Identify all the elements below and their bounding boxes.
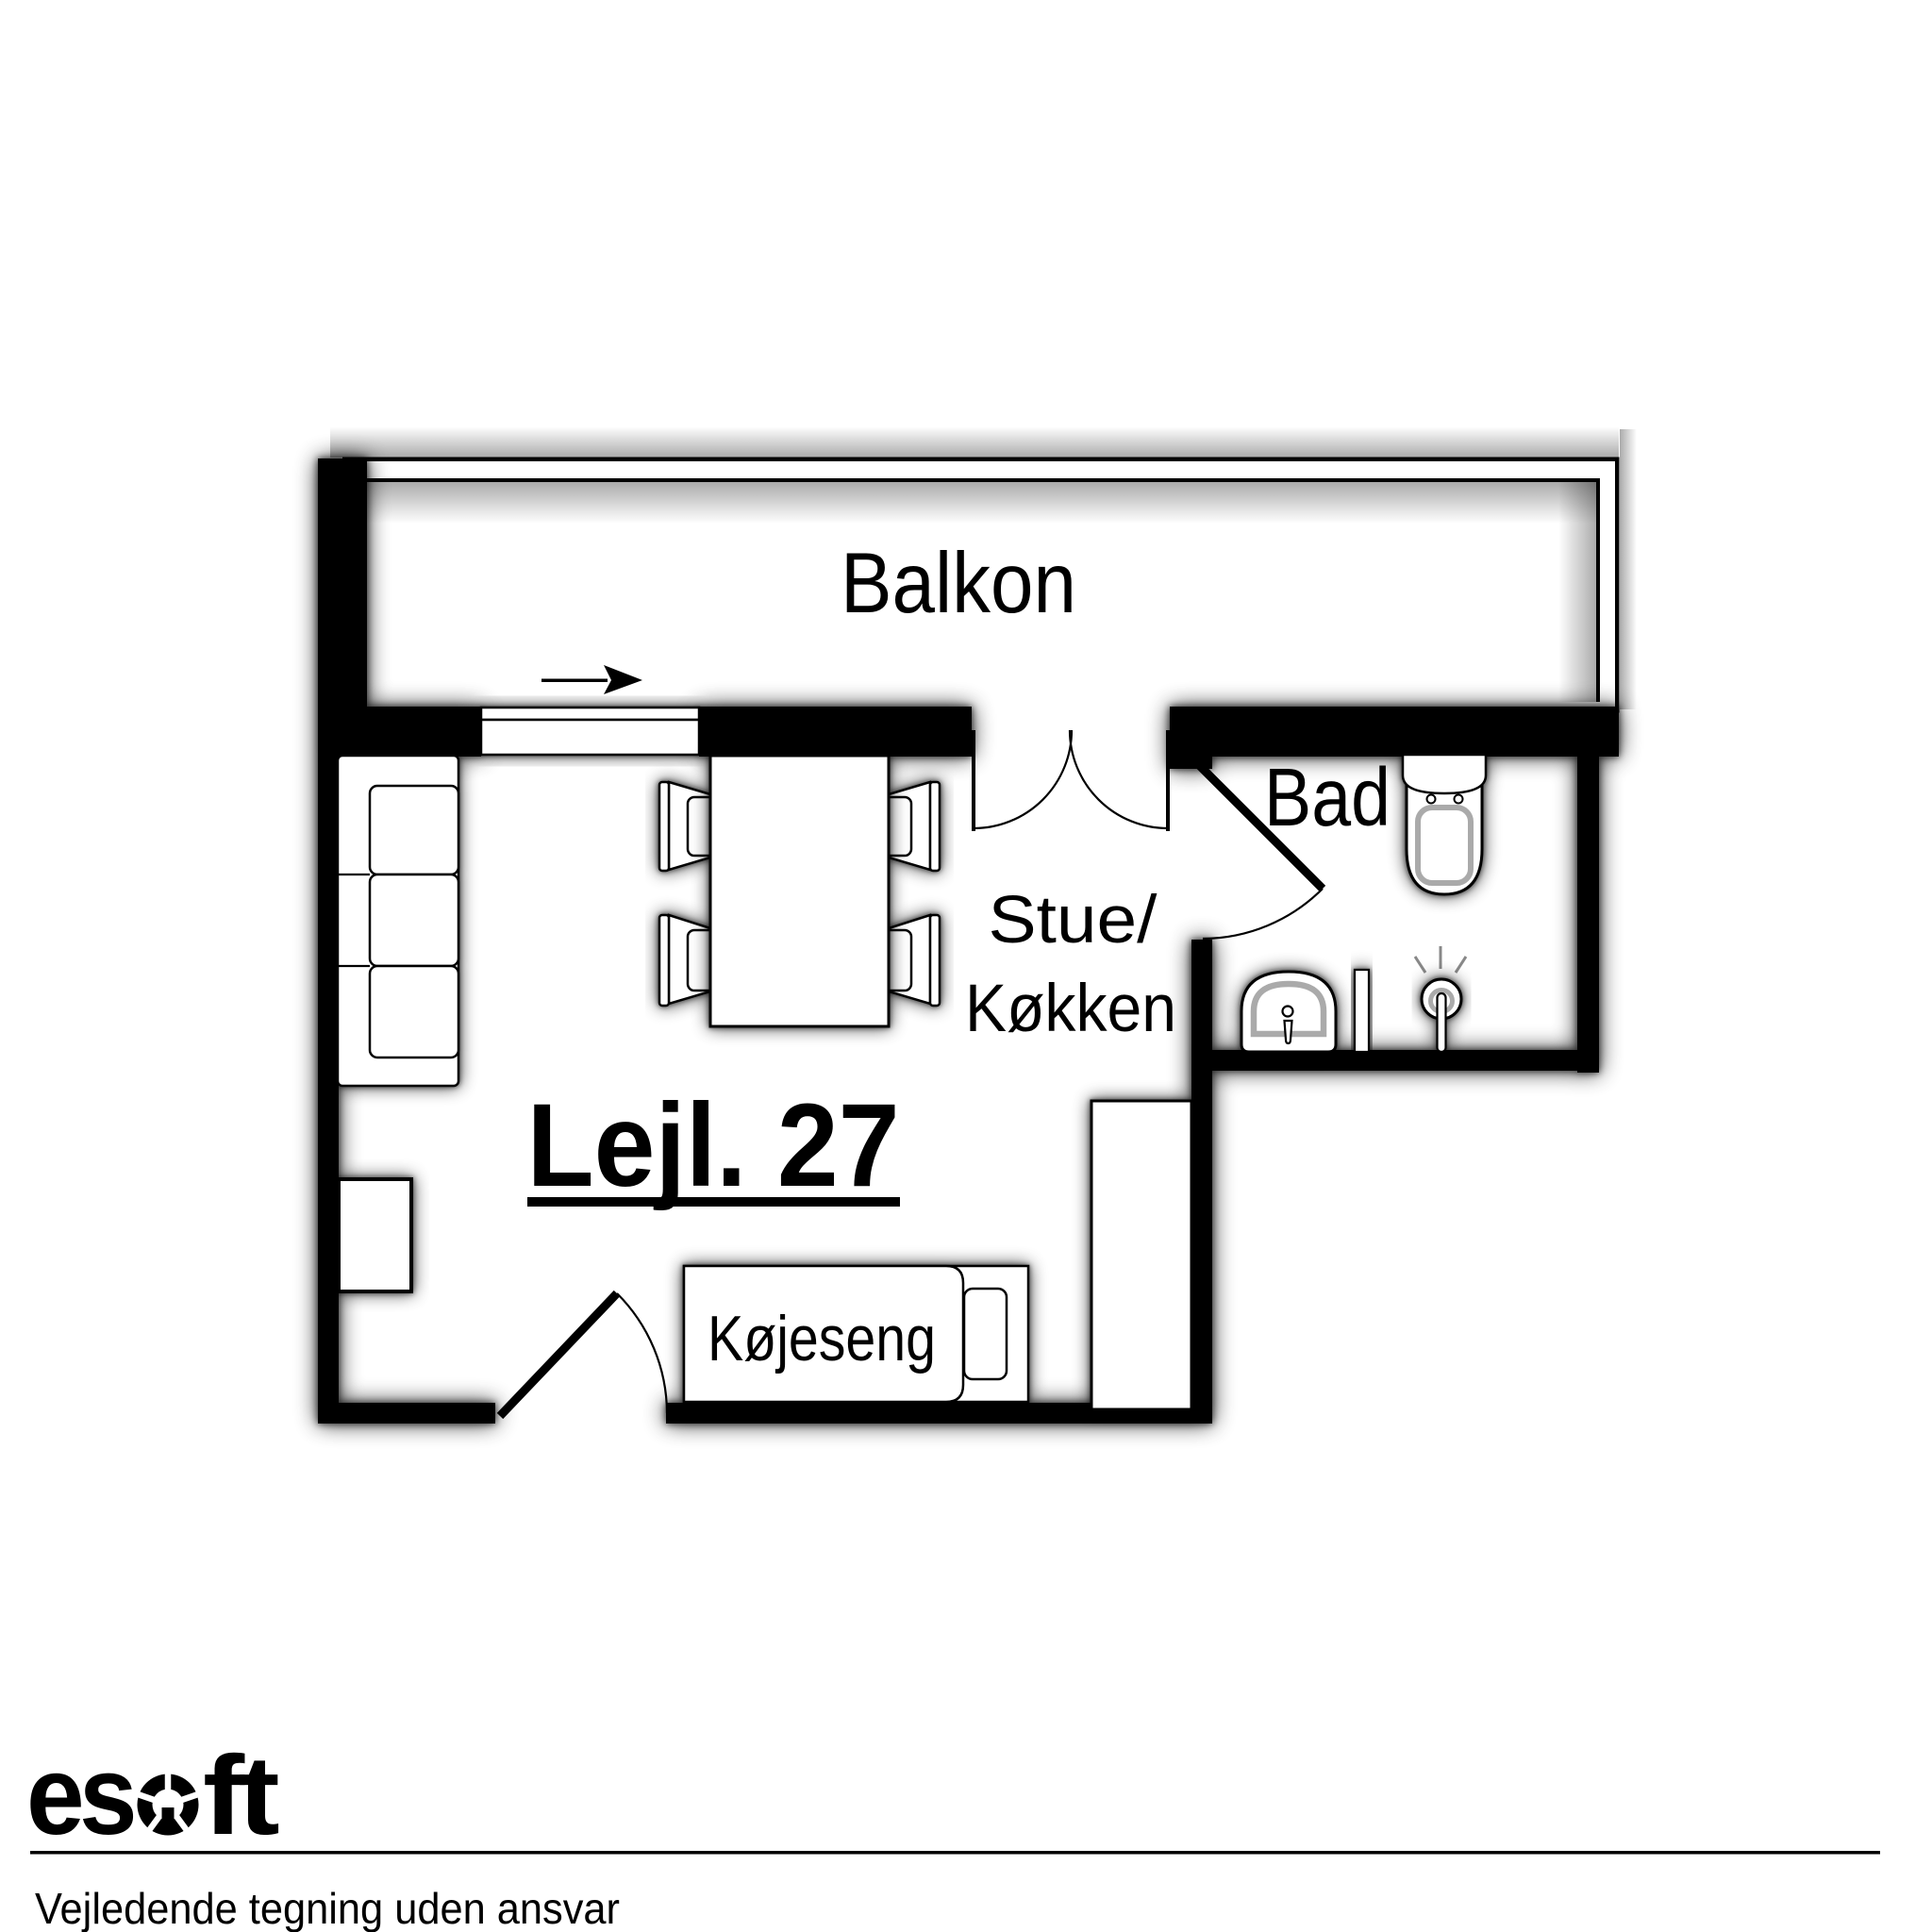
svg-text:Lejl. 27: Lejl. 27 bbox=[527, 1080, 900, 1211]
svg-text:es: es bbox=[26, 1733, 134, 1858]
svg-text:Bad: Bad bbox=[1264, 752, 1391, 843]
svg-text:Vejledende tegning uden ansvar: Vejledende tegning uden ansvar bbox=[35, 1884, 620, 1932]
svg-text:ft: ft bbox=[203, 1733, 279, 1858]
svg-text:Stue/: Stue/ bbox=[989, 883, 1158, 958]
svg-text:Køkken: Køkken bbox=[965, 972, 1176, 1046]
svg-text:Køjeseng: Køjeseng bbox=[708, 1303, 936, 1374]
svg-text:Balkon: Balkon bbox=[841, 536, 1076, 631]
